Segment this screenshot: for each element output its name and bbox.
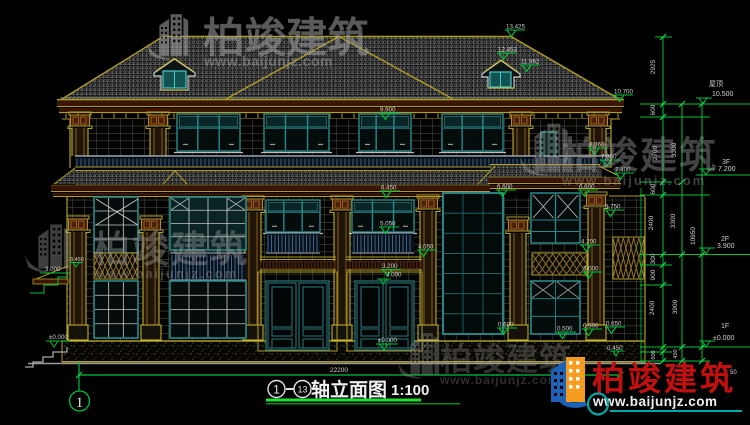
svg-text:10950: 10950 xyxy=(690,227,697,245)
svg-text:www.baijunjz.com: www.baijunjz.com xyxy=(93,266,238,281)
svg-text:10.500: 10.500 xyxy=(712,91,734,98)
svg-text:3.900: 3.900 xyxy=(717,243,735,250)
svg-text:柏竣建筑: 柏竣建筑 xyxy=(562,134,718,176)
svg-text:±0.000: ±0.000 xyxy=(49,334,68,341)
svg-text:3300: 3300 xyxy=(670,213,677,228)
svg-text:1:100: 1:100 xyxy=(391,382,429,399)
svg-text:600: 600 xyxy=(650,104,657,115)
svg-text:0.500: 0.500 xyxy=(557,326,573,333)
svg-text:2400: 2400 xyxy=(648,215,655,230)
svg-text:6.600: 6.600 xyxy=(497,184,513,191)
svg-text:4.050: 4.050 xyxy=(418,244,434,251)
svg-text:www.baijunjz.com: www.baijunjz.com xyxy=(561,173,706,188)
svg-text:22200: 22200 xyxy=(330,367,348,374)
svg-text:±0.000: ±0.000 xyxy=(713,335,734,342)
svg-text:7.200: 7.200 xyxy=(718,166,736,173)
svg-text:3.000: 3.000 xyxy=(386,272,402,279)
svg-text:10.700: 10.700 xyxy=(614,89,633,96)
svg-text:4.200: 4.200 xyxy=(581,239,597,246)
svg-text:0.600: 0.600 xyxy=(583,323,599,330)
svg-text:3900: 3900 xyxy=(672,299,679,314)
svg-text:6.450: 6.450 xyxy=(381,185,397,192)
svg-text:450: 450 xyxy=(673,349,679,358)
svg-text:柏竣建筑: 柏竣建筑 xyxy=(592,360,736,397)
svg-text:轴立面图: 轴立面图 xyxy=(311,378,387,401)
svg-text:3F: 3F xyxy=(722,159,730,166)
svg-text:www.baijunjz.com: www.baijunjz.com xyxy=(592,394,718,409)
svg-text:9.900: 9.900 xyxy=(380,107,396,114)
svg-text:2F: 2F xyxy=(721,236,729,243)
svg-text:12.453: 12.453 xyxy=(498,47,517,54)
svg-text:13.425: 13.425 xyxy=(506,24,525,31)
svg-text:13: 13 xyxy=(297,385,307,395)
svg-text:屋顶: 屋顶 xyxy=(709,80,723,88)
svg-text:5.750: 5.750 xyxy=(605,204,621,211)
svg-text:1F: 1F xyxy=(721,323,729,330)
svg-text:www.baijunjz.com: www.baijunjz.com xyxy=(203,53,333,69)
svg-text:11.962: 11.962 xyxy=(521,59,540,66)
svg-text:柏竣建筑: 柏竣建筑 xyxy=(93,228,249,270)
svg-text:0.650: 0.650 xyxy=(606,321,622,328)
svg-text:3.200: 3.200 xyxy=(382,263,398,270)
svg-text:0.600: 0.600 xyxy=(498,322,514,329)
svg-text:300: 300 xyxy=(650,253,657,264)
svg-text:600: 600 xyxy=(651,350,657,359)
svg-text:2400: 2400 xyxy=(649,300,656,315)
svg-text:2925: 2925 xyxy=(650,59,657,74)
svg-text:3.000: 3.000 xyxy=(583,266,599,273)
svg-text:1: 1 xyxy=(273,383,280,397)
svg-text:1: 1 xyxy=(76,395,84,411)
svg-text:±0.000: ±0.000 xyxy=(378,337,397,344)
svg-text:5.050: 5.050 xyxy=(380,221,396,228)
svg-text:www.baijunjz.com: www.baijunjz.com xyxy=(439,373,560,387)
svg-text:900: 900 xyxy=(650,269,657,280)
